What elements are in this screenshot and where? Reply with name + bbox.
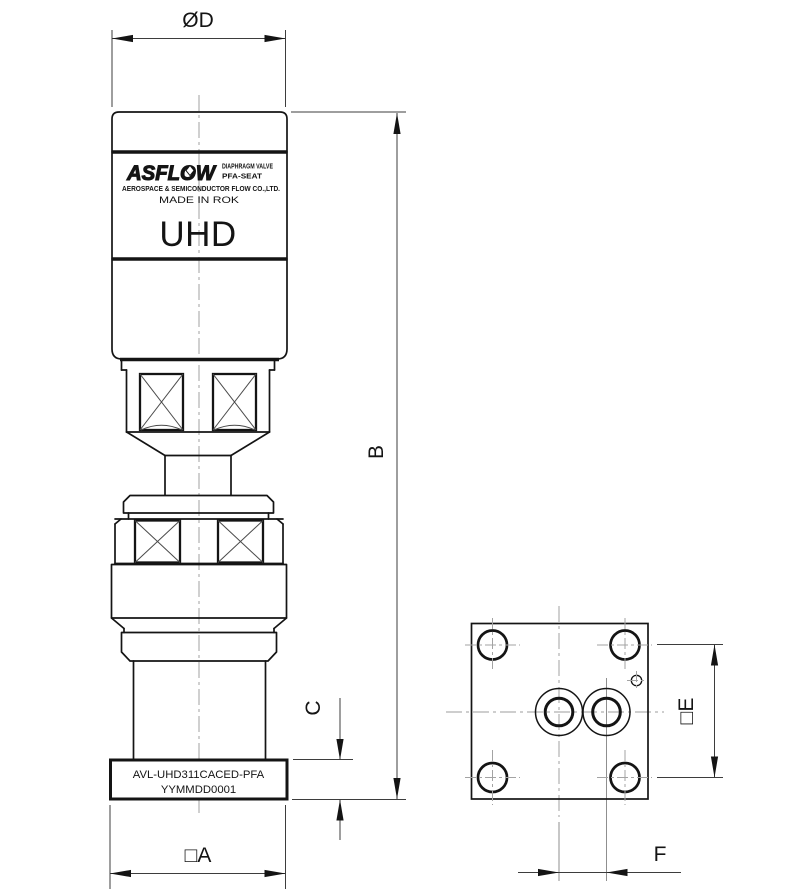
pin-hole (627, 671, 646, 690)
dim-label-bolt-square: □E (675, 698, 698, 725)
nameplate-seat-line: PFA-SEAT (222, 172, 262, 181)
nameplate-model: UHD (159, 215, 236, 254)
bottom-view (446, 606, 664, 881)
valve-drawing-canvas: ASFLOW DIAPHRAGM VALVE PFA-SEAT AEROSPAC… (0, 0, 800, 894)
dimension-overall-height: B (291, 112, 406, 800)
base-block: AVL-UHD311CACED-PFA YYMMDD0001 (111, 760, 288, 799)
nameplate-company-line: AEROSPACE & SEMICONDUCTOR FLOW CO.,LTD. (122, 184, 280, 193)
nameplate: ASFLOW DIAPHRAGM VALVE PFA-SEAT AEROSPAC… (122, 162, 280, 255)
taper-neck (127, 432, 270, 495)
nameplate-origin-line: MADE IN ROK (159, 195, 239, 205)
base-part-number: AVL-UHD311CACED-PFA (133, 769, 265, 781)
dimension-top-diameter: ØD (112, 9, 286, 107)
base-lot-number: YYMMDD0001 (161, 784, 236, 796)
bonnet-step (122, 361, 275, 432)
dim-label-top-diameter: ØD (182, 9, 214, 32)
dim-label-base-width: □A (185, 844, 212, 867)
brand-logo: ASFLOW (126, 162, 217, 185)
front-view: ASFLOW DIAPHRAGM VALVE PFA-SEAT AEROSPAC… (111, 95, 288, 816)
dimension-base-width: □A (110, 805, 286, 889)
nameplate-product-line: DIAPHRAGM VALVE (222, 162, 273, 171)
dim-label-base-height: C (302, 700, 325, 715)
engineering-drawing-page: ASFLOW DIAPHRAGM VALVE PFA-SEAT AEROSPAC… (0, 0, 800, 894)
dimension-base-height: C (293, 698, 353, 840)
dim-label-port-spacing: F (654, 843, 667, 866)
dim-label-overall-height: B (365, 445, 388, 459)
dimension-bolt-square: □E (657, 645, 723, 778)
nut-row-upper (140, 374, 256, 430)
dimension-port-spacing: F (518, 843, 681, 876)
